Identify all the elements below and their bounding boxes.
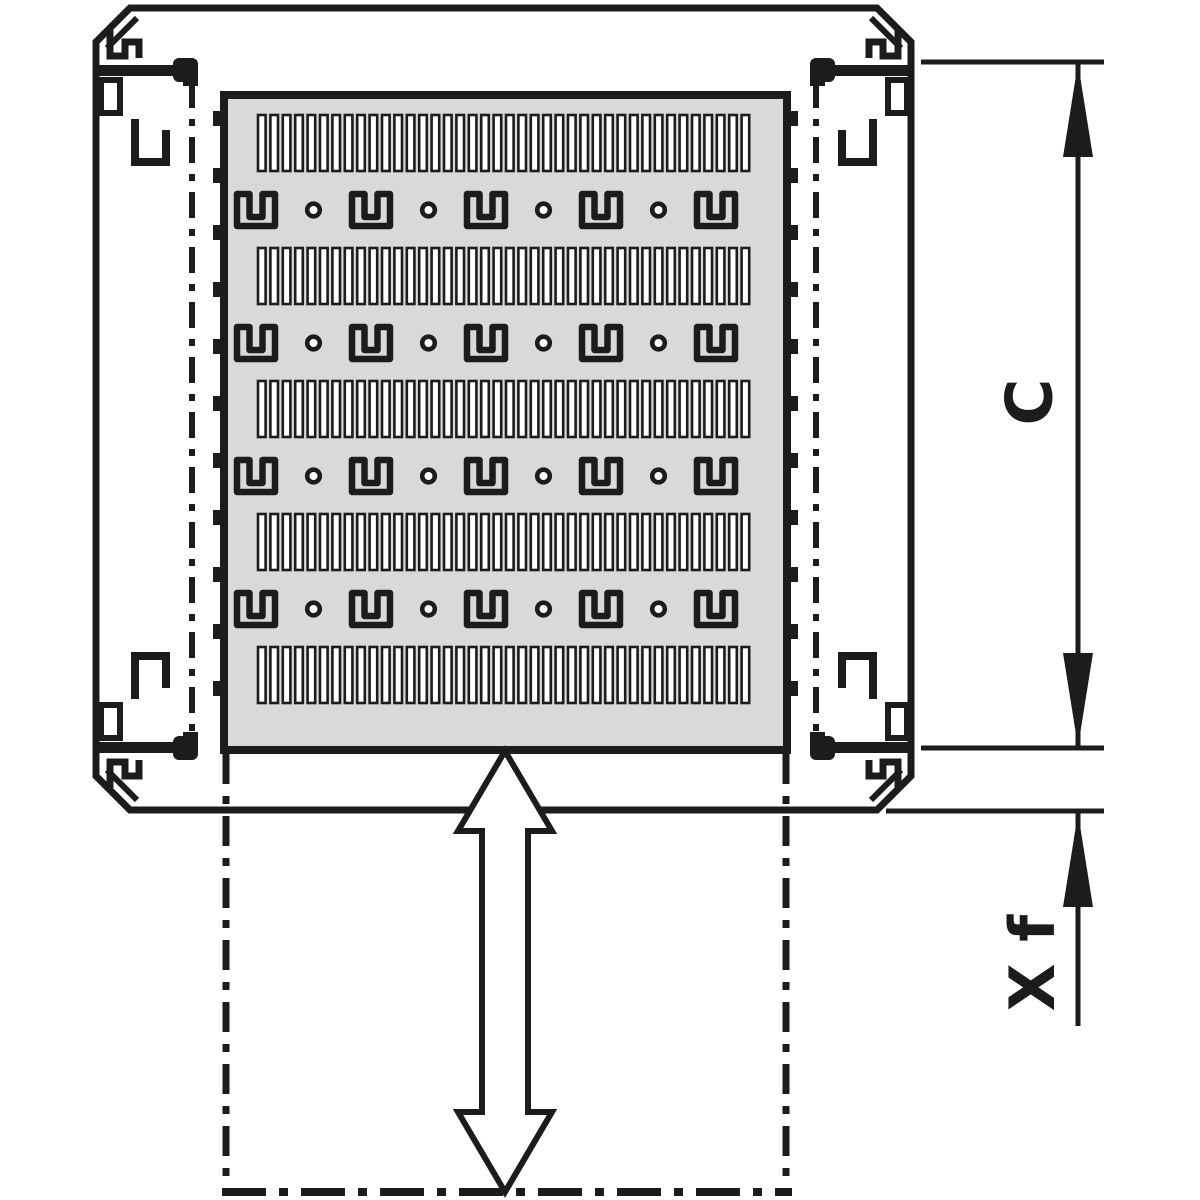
vent-slot — [556, 248, 564, 304]
vent-slot — [506, 381, 514, 437]
vent-slot — [494, 647, 502, 703]
vent-slot — [680, 647, 688, 703]
vent-slot — [518, 115, 526, 171]
vent-slot — [568, 248, 576, 304]
vent-slot — [506, 248, 514, 304]
vent-slot — [605, 514, 613, 570]
edge-notch — [790, 681, 798, 696]
edge-notch — [790, 510, 798, 525]
vent-slot — [680, 514, 688, 570]
vent-slot — [258, 248, 266, 304]
vent-slot — [568, 647, 576, 703]
corner-bracket-top-left — [97, 18, 198, 162]
rivet-dot — [652, 603, 665, 616]
vent-slot — [556, 381, 564, 437]
vent-slot — [258, 647, 266, 703]
vent-slot — [642, 647, 650, 703]
edge-notch — [790, 168, 798, 183]
vent-slot — [394, 647, 402, 703]
vent-slot — [593, 514, 601, 570]
vent-slot — [481, 381, 489, 437]
vent-slot — [270, 381, 278, 437]
vent-slot — [270, 647, 278, 703]
edge-notch — [213, 282, 221, 297]
vent-slot — [283, 115, 291, 171]
vent-slot — [444, 381, 452, 437]
vent-slot — [742, 115, 750, 171]
vent-slot — [382, 647, 390, 703]
vent-slot — [456, 248, 464, 304]
vent-slot — [506, 514, 514, 570]
vent-slot — [680, 381, 688, 437]
vent-slot — [456, 115, 464, 171]
vent-slot — [593, 248, 601, 304]
vent-slot — [580, 647, 588, 703]
vent-slot — [655, 248, 663, 304]
vent-slot — [469, 647, 477, 703]
vent-slot — [345, 115, 353, 171]
edge-notch — [213, 453, 221, 468]
vent-slot — [729, 381, 737, 437]
vent-slot — [655, 381, 663, 437]
rivet-dot — [307, 337, 320, 350]
vent-slot — [494, 381, 502, 437]
vent-slot — [419, 514, 427, 570]
vent-slot — [469, 115, 477, 171]
vent-slot — [320, 647, 328, 703]
vent-slot — [642, 514, 650, 570]
rivet-dot — [307, 204, 320, 217]
rivet-dot — [652, 337, 665, 350]
rivet-dot — [422, 337, 435, 350]
vent-slot — [370, 647, 378, 703]
vent-slot — [543, 381, 551, 437]
double-arrow-icon — [458, 751, 552, 1192]
vent-slot — [394, 115, 402, 171]
vent-slot — [469, 514, 477, 570]
vent-slot — [506, 647, 514, 703]
vent-slot — [332, 381, 340, 437]
vent-slot — [717, 514, 725, 570]
vent-slot — [332, 514, 340, 570]
vent-slot — [518, 647, 526, 703]
vent-slot — [742, 248, 750, 304]
slide-direction-arrow — [458, 751, 552, 1192]
edge-notch — [790, 339, 798, 354]
vent-slot — [704, 381, 712, 437]
vent-slot — [320, 248, 328, 304]
vent-slot — [667, 647, 675, 703]
vent-slot — [605, 115, 613, 171]
vent-slot — [704, 647, 712, 703]
rivet-dot — [537, 204, 550, 217]
edge-notch — [213, 396, 221, 411]
rivet-dot — [422, 470, 435, 483]
vent-slot — [283, 647, 291, 703]
vent-slot — [407, 647, 415, 703]
vent-slot — [308, 248, 316, 304]
vent-slot — [258, 514, 266, 570]
vent-slot — [531, 248, 539, 304]
vent-slot — [593, 381, 601, 437]
vent-slot — [531, 115, 539, 171]
dimension-xf: X f — [886, 811, 1104, 1026]
vent-slot — [295, 381, 303, 437]
shelf-plate — [213, 95, 798, 750]
vent-slot — [593, 115, 601, 171]
vent-slot — [283, 248, 291, 304]
vent-slot — [382, 514, 390, 570]
diagram-canvas: C X f — [0, 0, 1200, 1200]
vent-slot — [270, 248, 278, 304]
vent-slot — [481, 514, 489, 570]
vent-slot — [717, 115, 725, 171]
vent-slot — [655, 647, 663, 703]
vent-slot — [494, 248, 502, 304]
vent-slot — [332, 115, 340, 171]
vent-slot — [320, 115, 328, 171]
vent-slot — [444, 647, 452, 703]
vent-slot — [308, 647, 316, 703]
vent-slot — [580, 514, 588, 570]
vent-slot — [692, 514, 700, 570]
edge-notch — [790, 567, 798, 582]
edge-notch — [790, 225, 798, 240]
vent-slot — [518, 248, 526, 304]
vent-slot — [494, 115, 502, 171]
rivet-dot — [537, 470, 550, 483]
vent-slot — [419, 115, 427, 171]
vent-slot — [432, 514, 440, 570]
vent-slot — [419, 381, 427, 437]
vent-slot — [295, 514, 303, 570]
rivet-dot — [307, 603, 320, 616]
vent-slot — [469, 248, 477, 304]
vent-slot — [556, 115, 564, 171]
vent-slot — [370, 381, 378, 437]
vent-slot — [295, 248, 303, 304]
vent-slot — [295, 647, 303, 703]
vent-slot — [580, 381, 588, 437]
vent-slot — [407, 248, 415, 304]
vent-slot — [618, 381, 626, 437]
vent-slot — [692, 647, 700, 703]
vent-slot — [270, 514, 278, 570]
edge-notch — [213, 111, 221, 126]
vent-slot — [543, 514, 551, 570]
vent-slot — [692, 248, 700, 304]
vent-slot — [618, 514, 626, 570]
rivet-dot — [537, 603, 550, 616]
vent-slot — [531, 381, 539, 437]
vent-slot — [704, 248, 712, 304]
vent-slot — [357, 248, 365, 304]
vent-slot — [729, 647, 737, 703]
vent-slot — [456, 514, 464, 570]
rack-shelf-diagram: C X f — [0, 0, 1200, 1200]
vent-slot — [667, 514, 675, 570]
edge-notch — [213, 168, 221, 183]
vent-slot — [667, 381, 675, 437]
edge-notch — [790, 111, 798, 126]
vent-slot — [667, 115, 675, 171]
vent-slot — [704, 115, 712, 171]
vent-slot — [630, 115, 638, 171]
vent-slot — [332, 647, 340, 703]
vent-slot — [729, 248, 737, 304]
vent-slot — [618, 115, 626, 171]
vent-slot — [295, 115, 303, 171]
vent-slot — [717, 381, 725, 437]
vent-slot — [580, 115, 588, 171]
vent-slot — [680, 115, 688, 171]
vent-slot — [518, 381, 526, 437]
vent-slot — [605, 381, 613, 437]
vent-slot — [655, 115, 663, 171]
vent-slot — [320, 514, 328, 570]
vent-slot — [556, 647, 564, 703]
vent-slot — [407, 514, 415, 570]
vent-slot — [444, 115, 452, 171]
vent-slot — [692, 381, 700, 437]
corner-bracket-bottom-right — [810, 656, 911, 800]
vent-slot — [642, 381, 650, 437]
vent-slot — [432, 381, 440, 437]
vent-slot — [543, 115, 551, 171]
vent-slot — [704, 514, 712, 570]
vent-slot — [481, 647, 489, 703]
vent-slot — [345, 381, 353, 437]
vent-slot — [382, 248, 390, 304]
vent-slot — [283, 514, 291, 570]
vent-slot — [444, 248, 452, 304]
rivet-dot — [307, 470, 320, 483]
rivet-dot — [652, 470, 665, 483]
vent-slot — [630, 381, 638, 437]
vent-slot — [258, 115, 266, 171]
vent-slot — [370, 248, 378, 304]
dim-xf-arrow-top — [1063, 813, 1093, 907]
vent-slot — [729, 514, 737, 570]
vent-slot — [605, 647, 613, 703]
vent-slot — [357, 115, 365, 171]
vent-slot — [308, 381, 316, 437]
edge-notch — [790, 624, 798, 639]
vent-slot — [531, 514, 539, 570]
vent-slot — [432, 115, 440, 171]
vent-slot — [692, 115, 700, 171]
rivet-dot — [652, 204, 665, 217]
vent-slot — [742, 381, 750, 437]
vent-slot — [630, 248, 638, 304]
vent-slot — [494, 514, 502, 570]
vent-slot — [506, 115, 514, 171]
edge-notch — [790, 282, 798, 297]
vent-slot — [580, 248, 588, 304]
edge-notch — [213, 225, 221, 240]
vent-slot — [456, 381, 464, 437]
vent-slot — [382, 381, 390, 437]
vent-slot — [642, 248, 650, 304]
vent-slot — [717, 248, 725, 304]
vent-slot — [605, 248, 613, 304]
vent-slot — [308, 115, 316, 171]
vent-slot — [742, 514, 750, 570]
vent-slot — [630, 647, 638, 703]
dimension-c-label: C — [994, 379, 1068, 426]
vent-slot — [556, 514, 564, 570]
dimension-c: C — [921, 62, 1104, 748]
vent-slot — [667, 248, 675, 304]
vent-slot — [642, 115, 650, 171]
vent-slot — [419, 647, 427, 703]
vent-slot — [655, 514, 663, 570]
vent-slot — [419, 248, 427, 304]
vent-slot — [345, 647, 353, 703]
vent-slot — [407, 115, 415, 171]
vent-slot — [717, 647, 725, 703]
vent-slot — [357, 381, 365, 437]
vent-slot — [618, 248, 626, 304]
vent-slot — [357, 647, 365, 703]
vent-slot — [382, 115, 390, 171]
edge-notch — [790, 453, 798, 468]
vent-slot — [394, 248, 402, 304]
vent-slot — [270, 115, 278, 171]
vent-slot — [320, 381, 328, 437]
vent-slot — [481, 115, 489, 171]
vent-slot — [345, 248, 353, 304]
dim-c-arrow-top — [1063, 63, 1093, 157]
vent-slot — [568, 514, 576, 570]
vent-slot — [543, 647, 551, 703]
edge-notch — [213, 339, 221, 354]
vent-slot — [394, 381, 402, 437]
vent-slot — [357, 514, 365, 570]
edge-notch — [213, 510, 221, 525]
corner-bracket-bottom-left — [97, 656, 198, 800]
rivet-dot — [537, 337, 550, 350]
vent-slot — [680, 248, 688, 304]
corner-bracket-top-right — [810, 18, 911, 162]
vent-slot — [618, 647, 626, 703]
vent-slot — [432, 647, 440, 703]
vent-slot — [332, 248, 340, 304]
edge-notch — [213, 624, 221, 639]
vent-slot — [568, 381, 576, 437]
edge-notch — [213, 567, 221, 582]
vent-slot — [407, 381, 415, 437]
vent-slot — [469, 381, 477, 437]
vent-slot — [456, 647, 464, 703]
vent-slot — [543, 248, 551, 304]
vent-slot — [630, 514, 638, 570]
dim-c-arrow-bottom — [1063, 653, 1093, 747]
vent-slot — [481, 248, 489, 304]
vent-slot — [283, 381, 291, 437]
dimension-xf-label: X f — [996, 914, 1069, 1011]
vent-slot — [345, 514, 353, 570]
vent-slot — [258, 381, 266, 437]
rivet-dot — [422, 603, 435, 616]
vent-slot — [308, 514, 316, 570]
edge-notch — [790, 396, 798, 411]
rivet-dot — [422, 204, 435, 217]
edge-notch — [213, 681, 221, 696]
vent-slot — [432, 248, 440, 304]
vent-slot — [518, 514, 526, 570]
vent-slot — [729, 115, 737, 171]
vent-slot — [394, 514, 402, 570]
vent-slot — [444, 514, 452, 570]
vent-slot — [370, 514, 378, 570]
vent-slot — [370, 115, 378, 171]
vent-slot — [531, 647, 539, 703]
vent-slot — [593, 647, 601, 703]
vent-slot — [568, 115, 576, 171]
vent-slot — [742, 647, 750, 703]
